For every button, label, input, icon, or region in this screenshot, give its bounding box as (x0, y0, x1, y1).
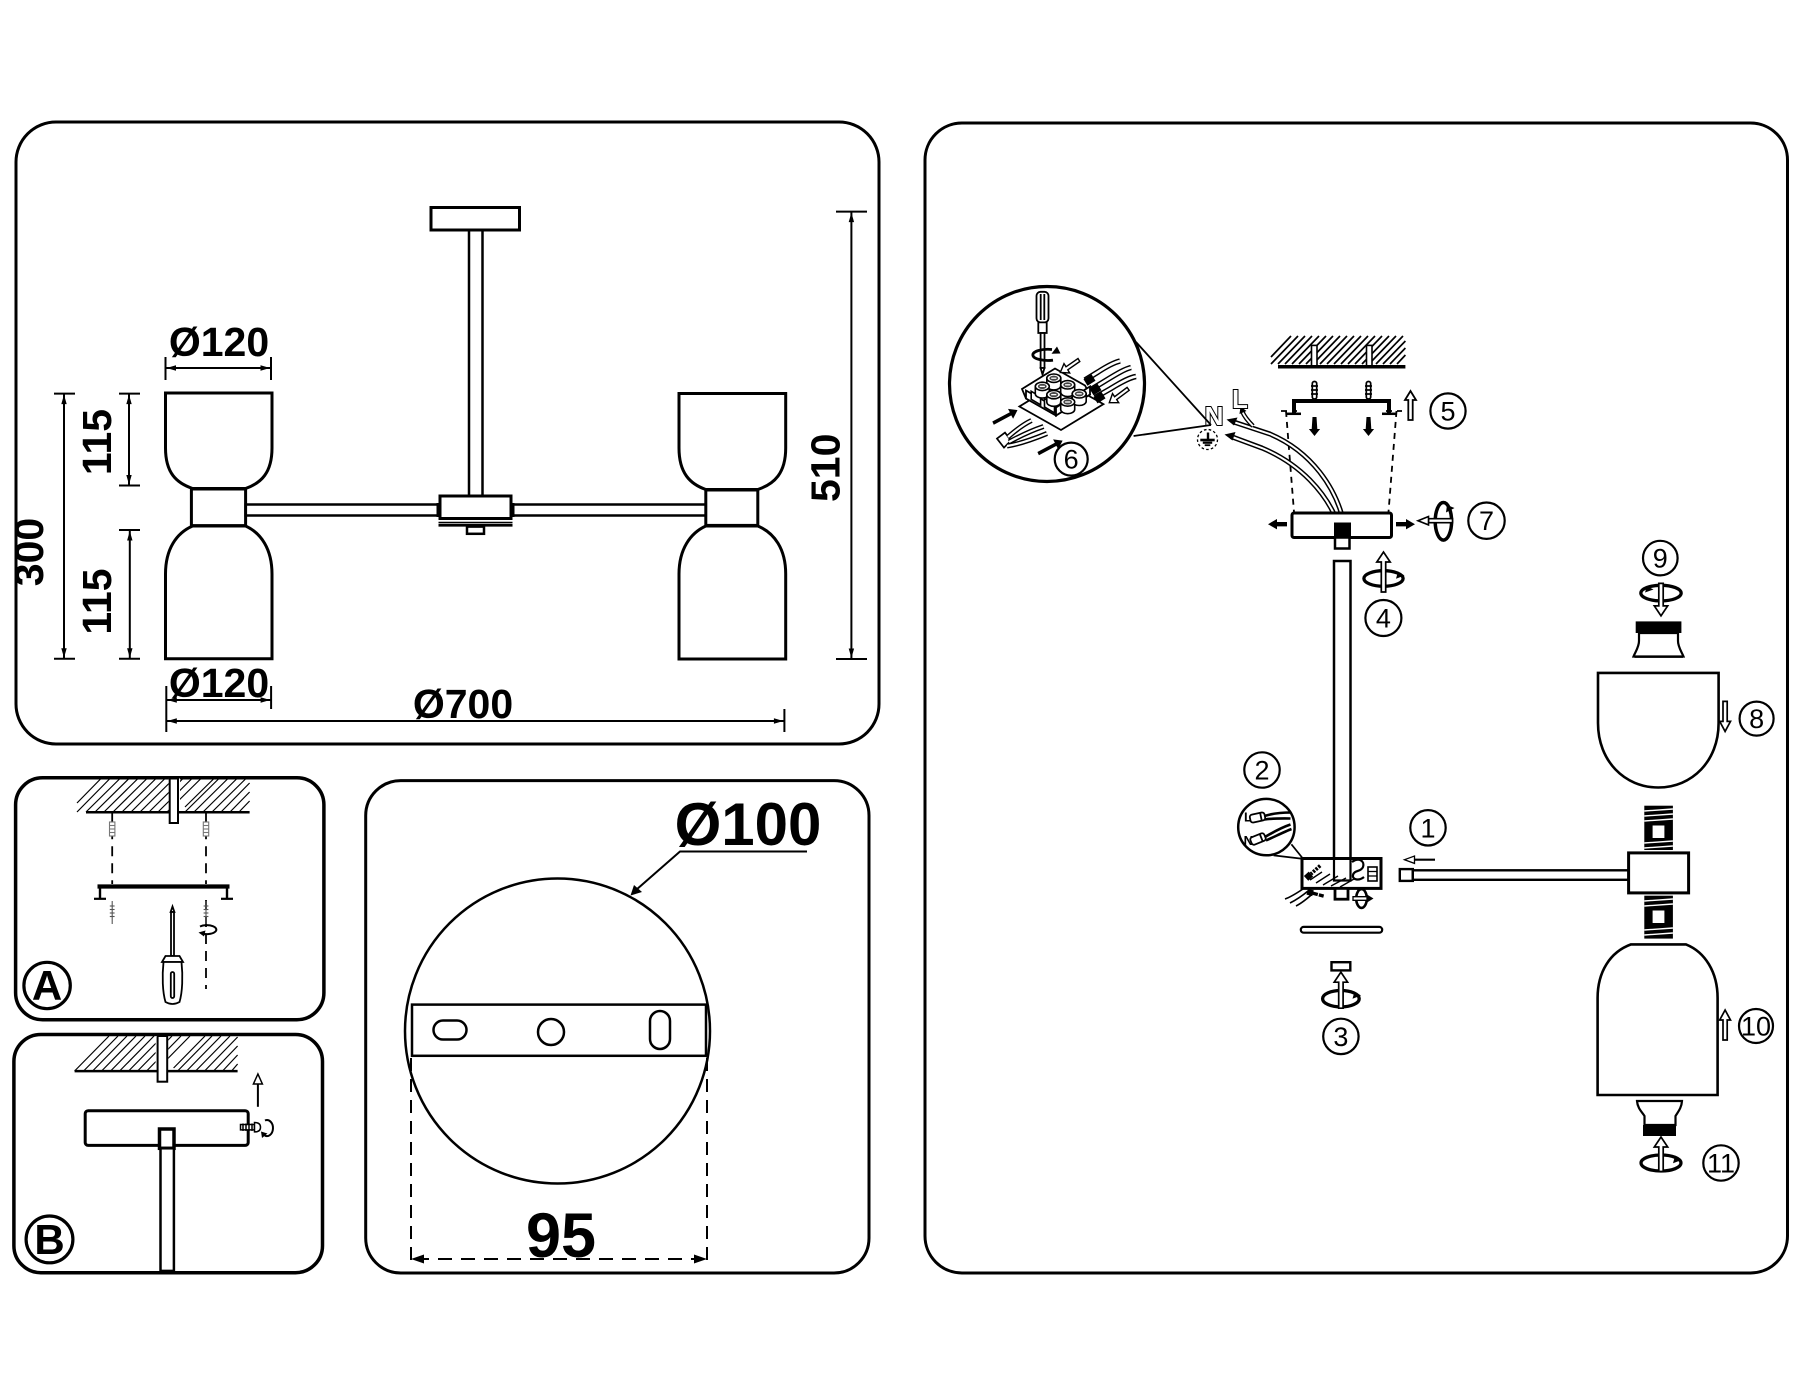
svg-text:9: 9 (1653, 544, 1668, 574)
svg-text:1: 1 (1420, 813, 1435, 843)
svg-text:95: 95 (526, 1201, 596, 1271)
svg-text:8: 8 (1749, 704, 1764, 734)
svg-text:300: 300 (6, 518, 52, 586)
svg-text:Ø120: Ø120 (169, 319, 269, 365)
svg-text:Ø120: Ø120 (169, 660, 269, 706)
svg-text:N: N (1205, 401, 1224, 431)
svg-text:L: L (1232, 384, 1248, 414)
svg-text:Ø700: Ø700 (413, 681, 513, 727)
svg-text:510: 510 (803, 434, 849, 502)
svg-text:5: 5 (1440, 397, 1455, 427)
svg-text:7: 7 (1479, 506, 1494, 536)
svg-text:6: 6 (1064, 445, 1079, 475)
svg-text:10: 10 (1741, 1012, 1771, 1042)
svg-text:115: 115 (74, 568, 120, 634)
svg-text:2: 2 (1254, 756, 1269, 786)
svg-text:115: 115 (74, 409, 120, 475)
svg-text:Ø100: Ø100 (675, 791, 822, 858)
svg-text:11: 11 (1707, 1149, 1735, 1179)
svg-text:3: 3 (1333, 1022, 1348, 1052)
svg-text:4: 4 (1376, 604, 1391, 634)
svg-text:A: A (32, 962, 62, 1009)
svg-text:B: B (34, 1216, 64, 1263)
